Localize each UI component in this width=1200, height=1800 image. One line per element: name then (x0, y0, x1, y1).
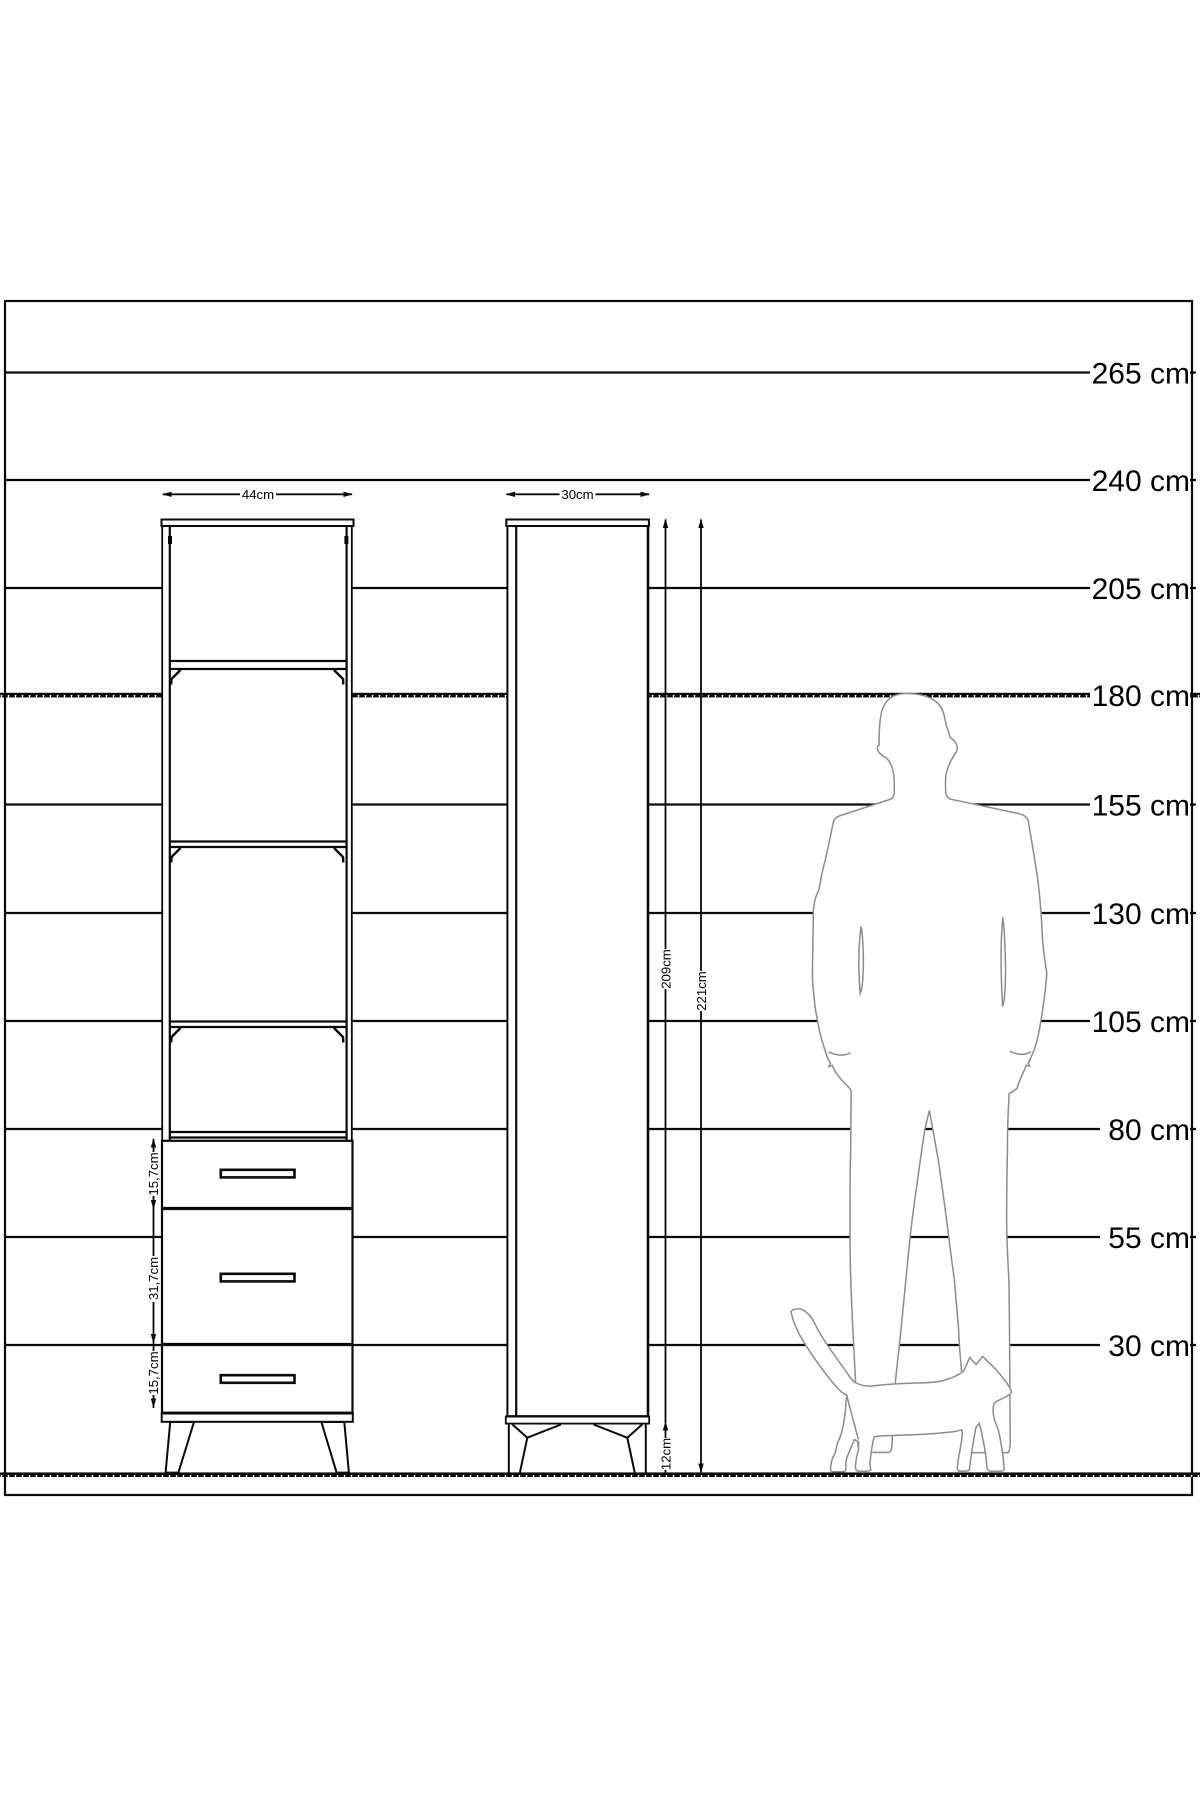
svg-text:209cm: 209cm (659, 949, 674, 989)
svg-text:30cm: 30cm (561, 487, 593, 502)
svg-text:265 cm: 265 cm (1092, 358, 1190, 391)
svg-text:80 cm: 80 cm (1108, 1114, 1190, 1147)
svg-text:12cm: 12cm (659, 1438, 674, 1470)
svg-text:55 cm: 55 cm (1108, 1222, 1190, 1255)
svg-text:240 cm: 240 cm (1092, 465, 1190, 498)
svg-text:205 cm: 205 cm (1092, 573, 1190, 606)
svg-text:15,7cm: 15,7cm (146, 1351, 161, 1394)
svg-text:44cm: 44cm (242, 487, 274, 502)
svg-text:180 cm: 180 cm (1092, 680, 1190, 713)
svg-text:130 cm: 130 cm (1092, 898, 1190, 931)
svg-text:221cm: 221cm (694, 971, 709, 1011)
svg-text:31,7cm: 31,7cm (146, 1257, 161, 1300)
svg-text:30 cm: 30 cm (1108, 1330, 1190, 1363)
svg-text:15,7cm: 15,7cm (146, 1152, 161, 1195)
svg-text:155 cm: 155 cm (1092, 790, 1190, 823)
svg-text:105 cm: 105 cm (1092, 1006, 1190, 1039)
